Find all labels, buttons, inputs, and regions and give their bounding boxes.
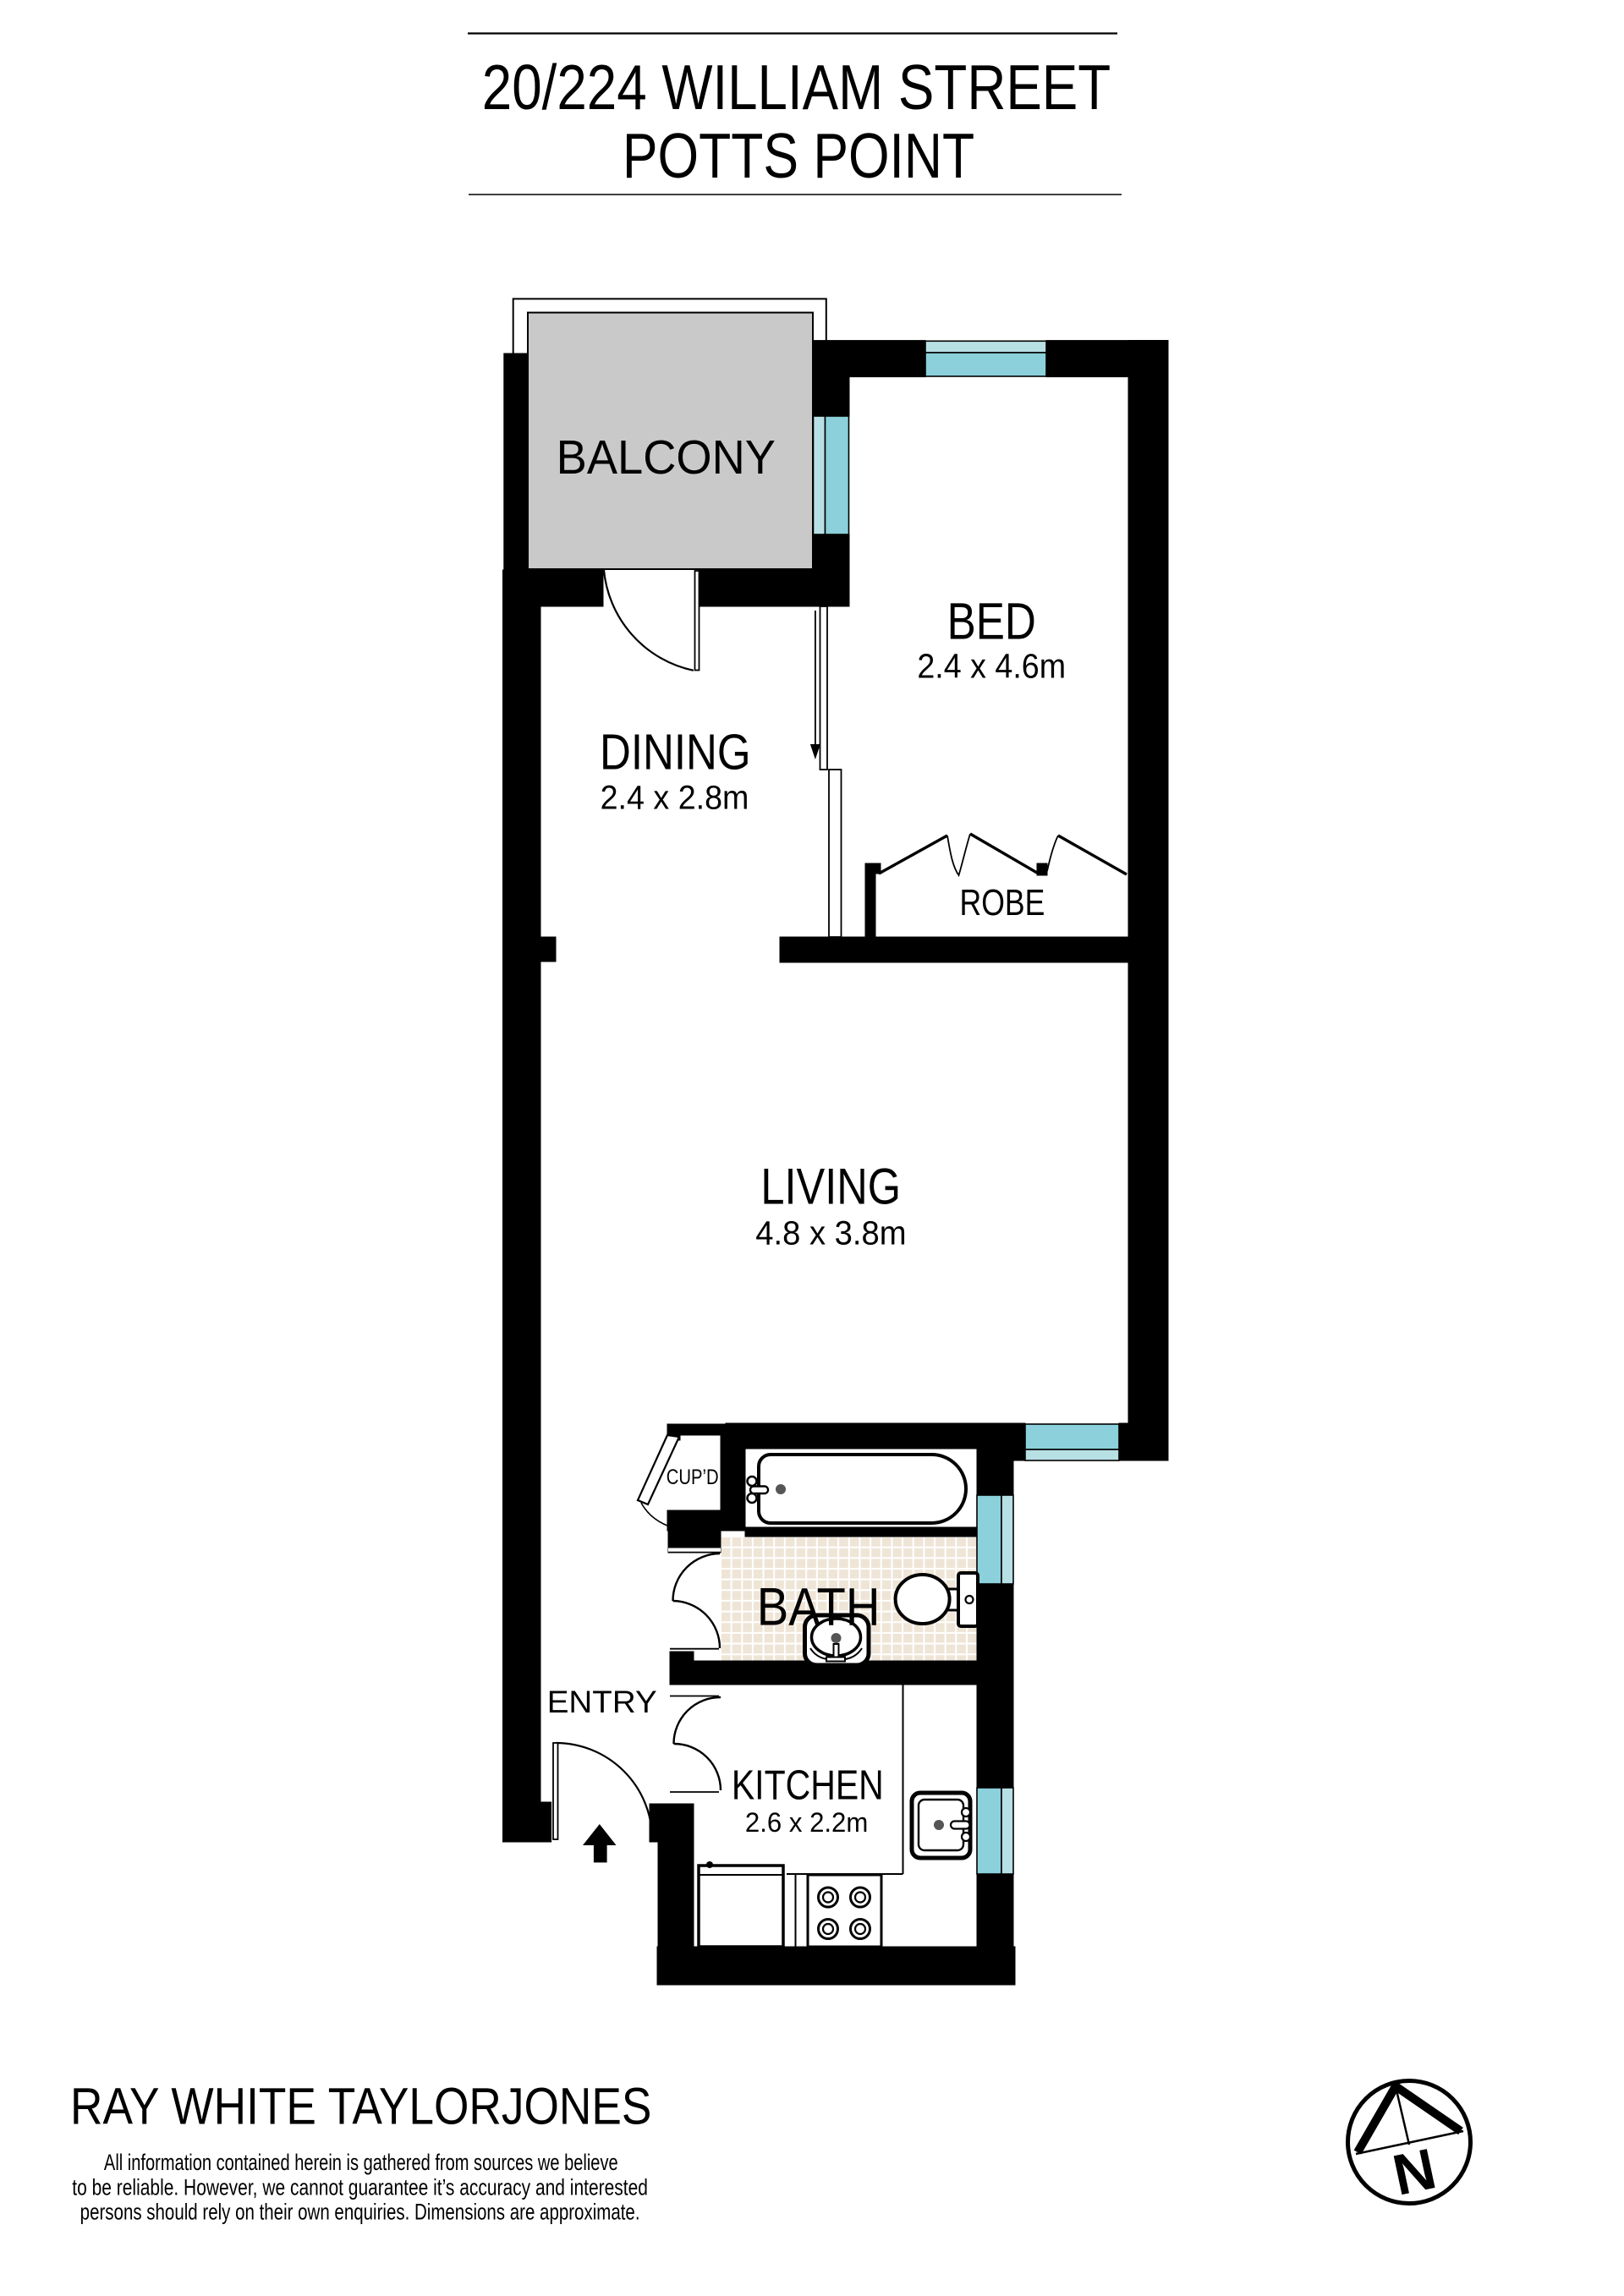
svg-text:BED: BED [947, 592, 1036, 649]
svg-text:CUP’D: CUP’D [667, 1465, 719, 1489]
svg-text:persons should rely on their o: persons should rely on their own enquiri… [80, 2200, 640, 2225]
svg-text:4.8 x 3.8m: 4.8 x 3.8m [755, 1215, 906, 1252]
svg-text:DINING: DINING [600, 724, 751, 780]
svg-text:BATH: BATH [757, 1577, 881, 1637]
svg-text:KITCHEN: KITCHEN [732, 1762, 884, 1808]
svg-text:20/224 WILLIAM STREET: 20/224 WILLIAM STREET [482, 52, 1111, 123]
svg-text:All information contained here: All information contained herein is gath… [104, 2150, 618, 2176]
svg-text:BALCONY: BALCONY [557, 430, 776, 484]
svg-text:RAY WHITE TAYLORJONES: RAY WHITE TAYLORJONES [70, 2078, 651, 2135]
svg-text:2.4 x 4.6m: 2.4 x 4.6m [917, 647, 1066, 686]
svg-text:2.4 x 2.8m: 2.4 x 2.8m [601, 780, 749, 817]
svg-text:2.6 x 2.2m: 2.6 x 2.2m [745, 1806, 868, 1838]
svg-text:LIVING: LIVING [760, 1158, 901, 1214]
svg-text:ROBE: ROBE [960, 883, 1045, 923]
svg-text:ENTRY: ENTRY [547, 1685, 657, 1720]
svg-text:POTTS POINT: POTTS POINT [623, 121, 974, 192]
svg-text:to be reliable. However, we ca: to be reliable. However, we cannot guara… [72, 2175, 648, 2200]
